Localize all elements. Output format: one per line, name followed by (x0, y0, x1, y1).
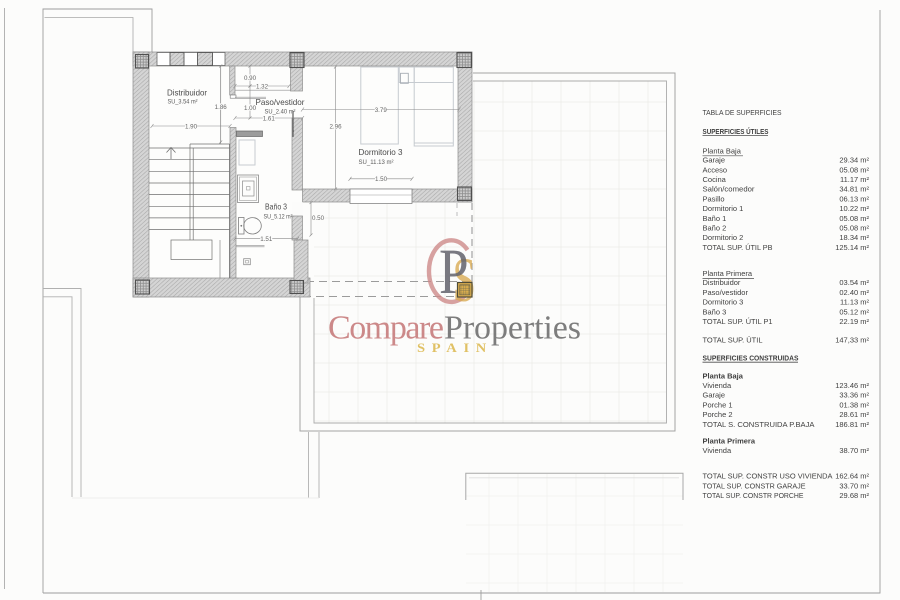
svg-text:05.12 m²: 05.12 m² (839, 307, 869, 316)
svg-text:TOTAL SUP. ÚTIL: TOTAL SUP. ÚTIL (703, 336, 763, 345)
svg-text:Acceso: Acceso (703, 165, 728, 174)
svg-text:Dormitorio 2: Dormitorio 2 (703, 233, 744, 242)
svg-text:Planta Primera: Planta Primera (703, 437, 756, 446)
svg-text:11.17 m²: 11.17 m² (840, 175, 870, 184)
svg-text:2.96: 2.96 (329, 124, 342, 131)
svg-text:Paso/vestidor: Paso/vestidor (703, 288, 749, 297)
svg-text:Dormitorio 3: Dormitorio 3 (359, 148, 403, 157)
svg-text:01.38 m²: 01.38 m² (839, 400, 869, 409)
svg-text:3.79: 3.79 (375, 107, 388, 114)
svg-text:Baño 3: Baño 3 (265, 202, 287, 211)
svg-text:147,33 m²: 147,33 m² (835, 336, 869, 345)
svg-text:Paso/vestidor: Paso/vestidor (256, 98, 305, 107)
svg-text:Baño 3: Baño 3 (703, 307, 727, 316)
svg-text:SU_5.12 m²: SU_5.12 m² (264, 214, 294, 221)
svg-text:SPAIN: SPAIN (417, 340, 493, 355)
svg-text:TOTAL SUP. CONSTR GARAJE: TOTAL SUP. CONSTR GARAJE (703, 481, 806, 490)
svg-text:03.54 m²: 03.54 m² (839, 278, 869, 287)
svg-text:34.81 m²: 34.81 m² (839, 185, 869, 194)
svg-text:11.13 m²: 11.13 m² (840, 298, 870, 307)
svg-text:Porche 2: Porche 2 (703, 410, 733, 419)
svg-text:186.81 m²: 186.81 m² (835, 420, 869, 429)
svg-text:123.46 m²: 123.46 m² (835, 381, 869, 390)
svg-text:38.70 m²: 38.70 m² (839, 446, 869, 455)
svg-text:33.70 m²: 33.70 m² (839, 481, 869, 490)
svg-text:TOTAL SUP. CONSTR PORCHE: TOTAL SUP. CONSTR PORCHE (703, 491, 804, 500)
svg-text:1.51: 1.51 (260, 236, 273, 243)
svg-text:Porche 1: Porche 1 (703, 400, 733, 409)
svg-text:Garaje: Garaje (703, 391, 726, 400)
svg-text:22.19 m²: 22.19 m² (839, 317, 869, 326)
svg-text:Vivienda: Vivienda (703, 381, 732, 390)
svg-text:Distribuidor: Distribuidor (703, 278, 741, 287)
svg-text:33.36 m²: 33.36 m² (839, 391, 869, 400)
svg-text:0.50: 0.50 (312, 215, 325, 222)
svg-text:1.61: 1.61 (263, 115, 276, 122)
svg-text:TABLA DE SUPERFICIES: TABLA DE SUPERFICIES (703, 108, 782, 117)
svg-text:1.50: 1.50 (375, 176, 388, 183)
svg-text:SUPERFICIES CONSTRUIDAS: SUPERFICIES CONSTRUIDAS (703, 353, 799, 362)
svg-text:Baño 1: Baño 1 (703, 214, 727, 223)
svg-text:Dormitorio 3: Dormitorio 3 (703, 298, 744, 307)
svg-text:02.40 m²: 02.40 m² (839, 288, 869, 297)
svg-text:TOTAL SUP. ÚTIL P1: TOTAL SUP. ÚTIL P1 (703, 317, 773, 326)
svg-text:Pasillo: Pasillo (703, 194, 725, 203)
svg-text:Planta Baja: Planta Baja (703, 147, 742, 156)
svg-text:Baño 2: Baño 2 (703, 224, 727, 233)
svg-text:Cocina: Cocina (703, 175, 727, 184)
svg-text:TOTAL SUP. CONSTR USO VIVIENDA: TOTAL SUP. CONSTR USO VIVIENDA (703, 472, 833, 481)
svg-text:06.13 m²: 06.13 m² (839, 194, 869, 203)
svg-text:0.90: 0.90 (244, 75, 257, 82)
svg-text:10.22 m²: 10.22 m² (839, 204, 869, 213)
svg-text:SU_11.13 m²: SU_11.13 m² (359, 159, 395, 166)
svg-text:125.14 m²: 125.14 m² (835, 243, 869, 252)
svg-text:1.90: 1.90 (185, 123, 198, 130)
svg-text:Planta Primera: Planta Primera (703, 269, 753, 278)
svg-text:1.32: 1.32 (256, 83, 269, 90)
svg-text:TOTAL SUP. ÚTIL PB: TOTAL SUP. ÚTIL PB (703, 243, 773, 252)
svg-text:28.61 m²: 28.61 m² (839, 410, 869, 419)
svg-text:Garaje: Garaje (703, 156, 726, 165)
svg-text:SU_2.40 m²: SU_2.40 m² (265, 108, 297, 115)
svg-text:05.08 m²: 05.08 m² (839, 214, 869, 223)
svg-text:29.68 m²: 29.68 m² (839, 491, 869, 500)
svg-text:1.86: 1.86 (215, 104, 228, 111)
svg-text:SU_3.54 m²: SU_3.54 m² (168, 99, 199, 106)
svg-text:Planta Baja: Planta Baja (703, 372, 744, 381)
svg-text:05.08 m²: 05.08 m² (839, 165, 869, 174)
svg-text:29.34 m²: 29.34 m² (839, 156, 869, 165)
svg-text:Dormitorio 1: Dormitorio 1 (703, 204, 744, 213)
svg-text:Vivienda: Vivienda (703, 446, 732, 455)
svg-text:Salón/comedor: Salón/comedor (703, 185, 756, 194)
svg-text:05.08 m²: 05.08 m² (839, 224, 869, 233)
svg-text:Distribuidor: Distribuidor (167, 88, 207, 97)
svg-text:TOTAL S. CONSTRUIDA P.BAJA: TOTAL S. CONSTRUIDA P.BAJA (703, 420, 815, 429)
svg-text:SUPERFICIES ÚTILES: SUPERFICIES ÚTILES (703, 127, 769, 136)
svg-text:162.64 m²: 162.64 m² (835, 472, 869, 481)
svg-text:18.34 m²: 18.34 m² (839, 233, 869, 242)
